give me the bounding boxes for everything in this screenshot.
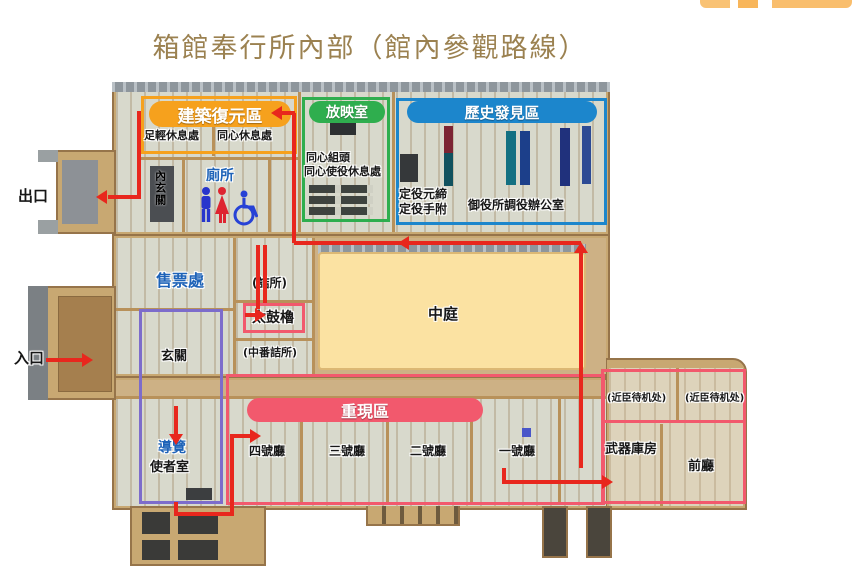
route-entry-arrowhead — [82, 353, 93, 367]
room-label-ticket-office: 售票處 — [156, 272, 204, 290]
room-label-kinshin-1: (近臣待机处) — [607, 393, 666, 405]
men-icon — [202, 187, 211, 222]
zone-pill-screening: 放映室 — [309, 101, 385, 123]
room-label-genkan: 玄關 — [161, 350, 187, 365]
route-orange-left-line — [137, 111, 141, 199]
zone-pill-history: 歷史發見區 — [407, 101, 597, 123]
page-title: 箱館奉行所內部（館內參觀路線） — [70, 26, 670, 65]
room-label-nakaban-tsumesho: (中番詰所) — [243, 347, 297, 360]
room-label-armory: 武器庫房 — [605, 443, 657, 458]
route-right-up-line — [579, 252, 583, 468]
room-label-sadayaku-motojime: 定役元締 — [399, 188, 447, 202]
route-genkan-line — [174, 406, 178, 436]
route-genkan-arrowhead — [169, 434, 183, 445]
room-label-sadayaku-tetsuke: 定役手附 — [399, 203, 447, 217]
wall — [236, 338, 314, 341]
wall — [182, 160, 185, 232]
room-label-courtyard: 中庭 — [428, 306, 458, 323]
step-cell — [178, 540, 218, 560]
wall — [298, 92, 301, 232]
route-exit-arrowhead — [96, 190, 107, 204]
exit-label: 出口 — [18, 188, 48, 205]
post-bottom-center — [542, 506, 568, 558]
route-right-up-arrowhead — [574, 242, 588, 253]
exit-porch-roof-bottom — [38, 220, 58, 234]
room-label-messenger-room: 使者室 — [150, 461, 189, 476]
room-label-front-hall: 前廳 — [688, 460, 714, 475]
route-taiko-line-1 — [256, 245, 260, 309]
zone-box-reenactment — [226, 374, 605, 505]
steps-bottom-center — [366, 504, 460, 526]
wall — [233, 238, 236, 374]
room-label-ashigaru: 足輕休息處 — [144, 130, 199, 143]
room-label-hall3: 三號廳 — [329, 445, 365, 459]
route-top-vertical — [292, 113, 296, 243]
room-label-doshin-kumigashira: 同心組頭 — [306, 152, 350, 165]
wall — [140, 157, 298, 160]
route-corridor-arrowhead — [398, 236, 409, 250]
route-pill-arrowhead — [271, 106, 282, 120]
route-u-bottom — [174, 512, 234, 516]
route-br-arrowhead — [602, 475, 613, 489]
route-hall4-arrowhead — [250, 429, 261, 443]
women-icon — [215, 187, 229, 223]
entrance-label: 入口 — [14, 350, 44, 367]
wall — [268, 160, 271, 232]
restroom-icons — [198, 186, 258, 228]
exit-porch-roof-top — [38, 150, 58, 162]
entrance-porch-door — [58, 296, 112, 392]
top-right-decoration — [700, 0, 852, 8]
route-u-right — [230, 438, 234, 516]
post-bottom-center — [586, 506, 612, 558]
zone-box-right-wing — [601, 369, 746, 504]
zone-pill-reenactment: 重現區 — [247, 398, 483, 422]
step-cell — [142, 512, 170, 534]
step-cell — [142, 540, 170, 560]
route-entry-line — [46, 358, 82, 362]
roof-top-edge — [112, 82, 610, 92]
wall — [392, 92, 395, 232]
room-label-hall1: 一號廳 — [499, 445, 535, 459]
route-corridor-line — [294, 241, 581, 245]
route-exit-line — [108, 195, 141, 199]
route-br-line — [502, 480, 604, 484]
route-hall4-line — [230, 434, 252, 438]
exit-porch-interior — [62, 160, 98, 224]
room-label-hall4: 四號廳 — [249, 445, 285, 459]
room-label-inner-entrance: 內玄關 — [153, 170, 166, 206]
room-label-kinshin-2: (近臣待机处) — [685, 393, 744, 405]
route-taiko-line-2 — [263, 245, 267, 303]
wheelchair-icon — [235, 191, 257, 225]
route-taiko-arrowhead — [255, 308, 266, 322]
room-label-doshin-shieki: 同心使役休息處 — [304, 166, 381, 179]
zone-pill-reconstruction: 建築復元區 — [149, 101, 291, 127]
room-label-hall2: 二號廳 — [410, 445, 446, 459]
wall — [312, 238, 315, 374]
room-label-doshin-rest: 同心休息處 — [217, 130, 272, 143]
museum-floorplan-map: 箱館奉行所內部（館內參觀路線） — [0, 0, 852, 573]
room-label-toilet: 廁所 — [206, 168, 234, 184]
zone-box-right-wing-divider — [601, 420, 746, 423]
room-label-office: 御役所調役辦公室 — [468, 199, 564, 213]
entrance-porch-wall — [28, 286, 48, 400]
